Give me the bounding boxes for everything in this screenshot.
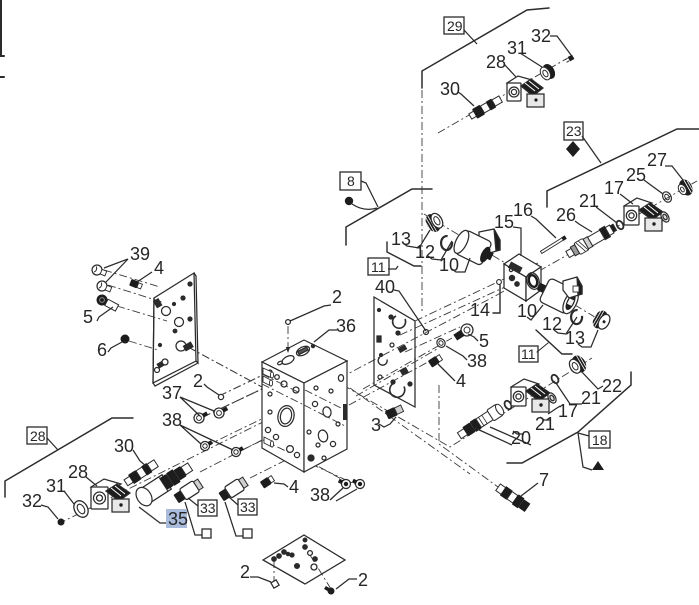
svg-text:15: 15 [494,212,514,232]
svg-text:39: 39 [130,244,150,264]
svg-text:16: 16 [513,200,533,220]
svg-text:36: 36 [336,316,356,336]
svg-text:21: 21 [581,388,601,408]
svg-text:23: 23 [566,123,582,139]
svg-text:28: 28 [486,52,506,72]
svg-text:12: 12 [415,242,435,262]
svg-text:25: 25 [626,165,646,185]
svg-text:33: 33 [240,499,256,515]
svg-text:11: 11 [521,346,536,362]
svg-text:30: 30 [114,436,134,456]
svg-text:10: 10 [517,301,537,321]
svg-text:12: 12 [542,314,562,334]
svg-text:21: 21 [579,191,599,211]
svg-text:11: 11 [371,259,386,275]
svg-text:22: 22 [602,376,622,396]
svg-text:37: 37 [162,383,182,403]
svg-text:17: 17 [558,401,578,421]
svg-text:38: 38 [467,351,487,371]
svg-text:2: 2 [193,371,203,391]
svg-text:6: 6 [97,340,107,360]
svg-text:32: 32 [22,491,42,511]
svg-text:33: 33 [200,500,216,516]
svg-text:10: 10 [439,255,459,275]
svg-text:31: 31 [507,38,527,58]
svg-text:4: 4 [456,371,466,391]
svg-text:4: 4 [154,258,164,278]
svg-text:30: 30 [440,79,460,99]
svg-text:17: 17 [604,178,624,198]
svg-text:28: 28 [30,428,46,444]
svg-text:2: 2 [240,562,250,582]
svg-text:4: 4 [289,477,299,497]
svg-text:28: 28 [68,462,88,482]
svg-text:27: 27 [647,150,667,170]
svg-text:14: 14 [470,300,490,320]
svg-text:2: 2 [332,287,342,307]
svg-text:38: 38 [162,410,182,430]
svg-text:2: 2 [358,570,368,590]
svg-text:5: 5 [83,307,93,327]
svg-text:26: 26 [556,205,576,225]
svg-text:13: 13 [391,229,411,249]
svg-text:40: 40 [375,277,395,297]
svg-text:5: 5 [479,331,489,351]
svg-text:21: 21 [535,414,555,434]
svg-text:18: 18 [592,432,608,448]
svg-text:38: 38 [310,485,330,505]
svg-text:31: 31 [46,476,66,496]
svg-text:32: 32 [531,26,551,46]
svg-text:7: 7 [539,470,549,490]
svg-text:8: 8 [347,173,355,189]
svg-text:13: 13 [565,328,585,348]
svg-text:20: 20 [511,428,531,448]
svg-text:3: 3 [371,415,381,435]
svg-text:29: 29 [447,18,463,34]
svg-text:35: 35 [168,509,188,529]
